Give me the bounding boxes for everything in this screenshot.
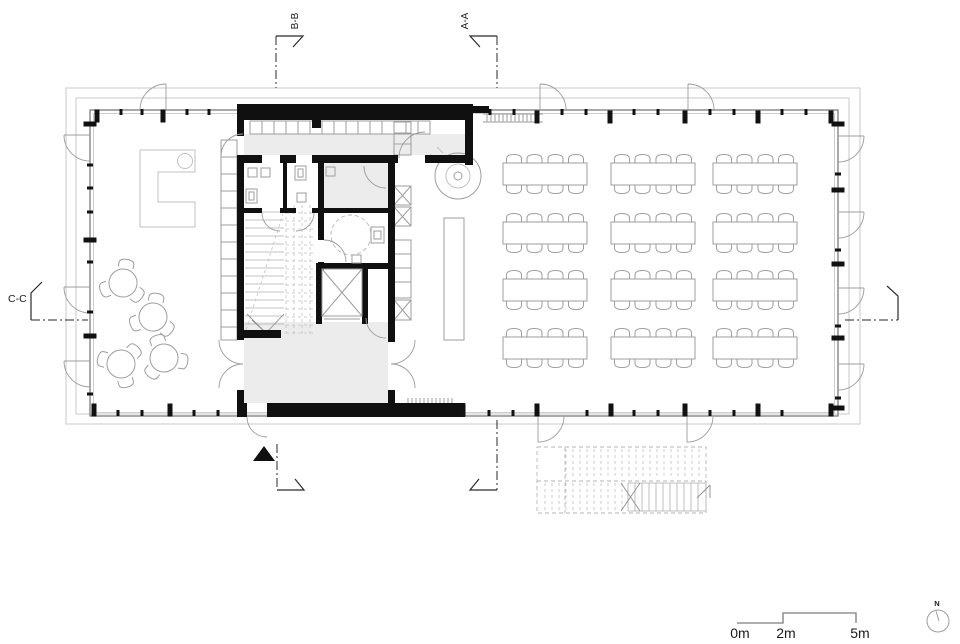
scale-label-0m: 0m [730,625,749,641]
exterior-stair [537,447,710,513]
section-label-bb: B-B [290,12,301,29]
scale-bar: 0m 2m 5m [730,613,869,641]
north-arrow-icon: N [927,599,949,632]
floor-plan-drawing: B-B A-A C-C 0m 2m 5m N [0,0,960,644]
core-stair [245,205,316,336]
section-label-aa: A-A [460,12,471,29]
elevator [322,269,362,319]
dining-tables [503,155,797,368]
scale-label-5m: 5m [850,625,869,641]
buffet-counter [444,218,464,340]
scale-label-2m: 2m [776,625,795,641]
reception-desk [140,150,195,227]
section-marker-aa: A-A [460,12,497,490]
entrance-arrow [253,446,275,461]
floor-plan-sheet: B-B A-A C-C 0m 2m 5m N [0,0,960,644]
cafe-round-tables [91,255,192,394]
north-label: N [934,599,939,608]
section-marker-bb: B-B [276,12,304,490]
bench-grille-north [483,114,543,122]
section-label-cc: C-C [8,293,27,305]
